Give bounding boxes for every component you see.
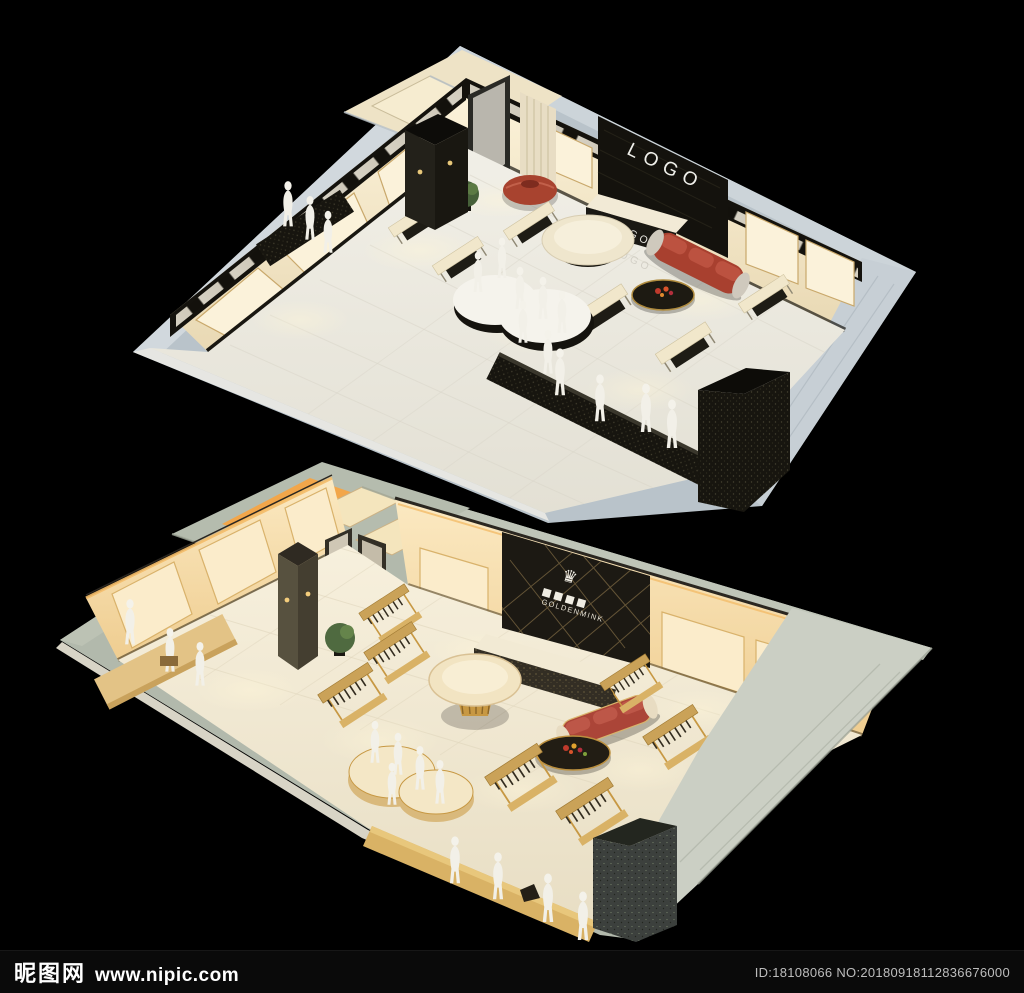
image-id: ID:18108066 NO:20180918112836676000 [755, 965, 1010, 980]
interior-pillar [405, 114, 468, 230]
image-id-text: ID:18108066 NO:20180918112836676000 [755, 965, 1010, 980]
interior-pillar [278, 542, 318, 670]
sconce-light-icon [418, 170, 423, 175]
render-bottom: ♛ GOLDENMINK [56, 462, 932, 942]
site-url: www.nipic.com [95, 965, 239, 987]
stock-image-artwork: LOGO LOGO LOGO [0, 0, 1024, 950]
corner-column [698, 368, 790, 512]
corner-column [593, 818, 677, 942]
render-top: LOGO LOGO LOGO [133, 46, 916, 523]
coffee-table [631, 280, 695, 314]
sconce-light-icon [448, 161, 453, 166]
page: LOGO LOGO LOGO [0, 0, 1024, 993]
watermark-site: 昵图网 www.nipic.com [14, 956, 239, 988]
round-table [429, 654, 521, 730]
sconce-light-icon [285, 598, 290, 603]
site-logo: 昵图网 [14, 956, 86, 988]
bench [160, 656, 178, 666]
watermark-bar: 昵图网 www.nipic.com ID:18108066 NO:2018091… [0, 950, 1024, 993]
sconce-light-icon [306, 592, 311, 597]
